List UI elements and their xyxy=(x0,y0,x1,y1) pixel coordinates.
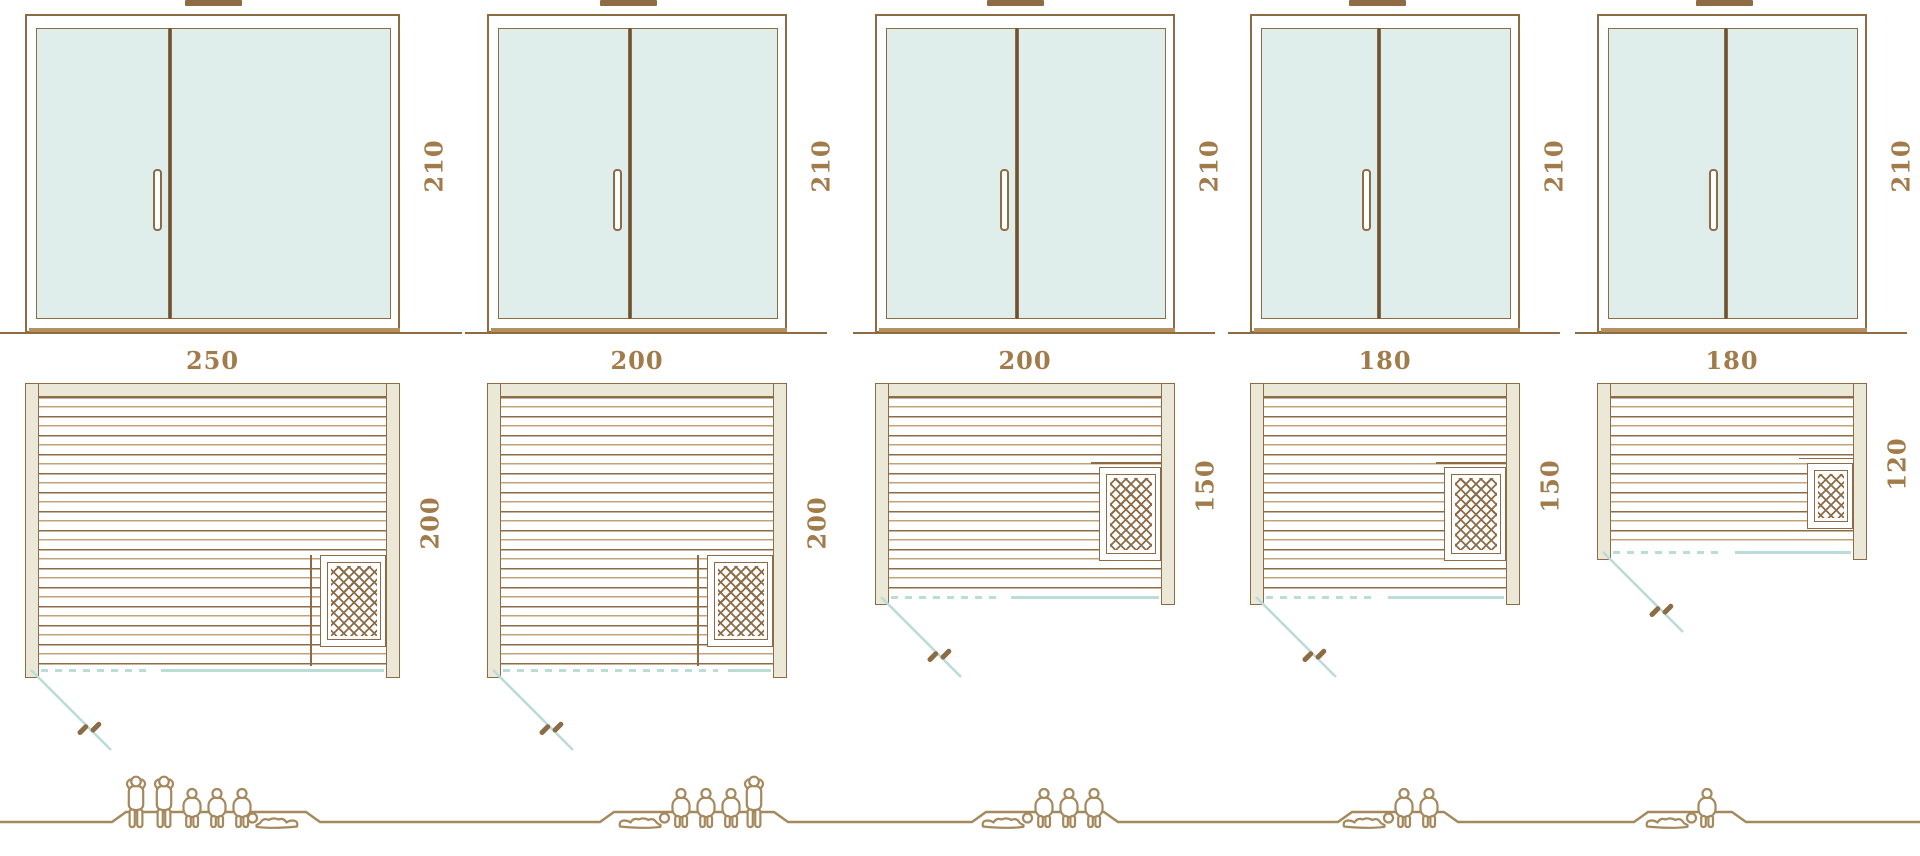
figure-sitting-icon xyxy=(723,789,740,827)
figure-lying-icon xyxy=(1647,814,1696,828)
figure-lying-icon xyxy=(620,814,669,828)
door-width-label: 250 xyxy=(25,346,400,375)
figure-sitting-icon xyxy=(209,789,226,827)
plan-wall-top xyxy=(487,383,787,397)
figure-sitting-icon xyxy=(1036,789,1053,827)
model-column: 210250200 xyxy=(25,0,400,856)
ground-line xyxy=(465,332,827,334)
plan-wall-top xyxy=(875,383,1175,397)
heater-icon xyxy=(1814,470,1848,522)
plan-wall-right xyxy=(773,383,787,678)
door-width-label: 200 xyxy=(875,346,1175,375)
plan-depth-label: 200 xyxy=(416,496,445,549)
ground-line xyxy=(0,332,462,334)
glass-pane-left xyxy=(1608,28,1725,319)
plan-wall-right xyxy=(1161,383,1175,605)
figure-lying-icon xyxy=(983,814,1032,828)
plan-depth-label: 120 xyxy=(1883,437,1912,490)
glass-pane-left xyxy=(886,28,1016,319)
door-handle-icon xyxy=(1362,169,1371,231)
bench-divider-line xyxy=(1091,462,1161,464)
glass-pane-right xyxy=(1018,28,1166,319)
door-divider xyxy=(1378,28,1380,319)
capacity-strip xyxy=(0,770,1920,856)
figure-sitting-icon xyxy=(1086,789,1103,827)
glass-wall-line xyxy=(1735,551,1851,554)
capacity-group xyxy=(620,777,763,828)
roof-stub xyxy=(185,0,242,6)
glass-pane-right xyxy=(171,28,391,319)
bench-divider-line xyxy=(697,555,699,666)
plan-wall-left xyxy=(487,383,501,678)
figure-sitting-icon xyxy=(673,789,690,827)
heater-icon xyxy=(1106,474,1156,554)
glass-wall-line xyxy=(161,669,384,672)
heater-icon xyxy=(714,562,768,640)
figure-sitting-icon xyxy=(1396,789,1413,827)
door-height-label: 210 xyxy=(1887,139,1916,192)
door-elevation xyxy=(1250,14,1520,333)
floor-plan xyxy=(487,383,787,678)
glass-pane-left xyxy=(1261,28,1378,319)
bench-divider-line xyxy=(1799,458,1853,460)
plan-wall-right xyxy=(1506,383,1520,605)
glass-pane-left xyxy=(498,28,629,319)
figure-lying-icon xyxy=(248,814,297,828)
model-column: 210180150 xyxy=(1250,0,1520,856)
plan-depth-label: 150 xyxy=(1536,459,1565,512)
door-divider xyxy=(629,28,631,319)
floor-plan xyxy=(875,383,1175,605)
door-width-label: 180 xyxy=(1597,346,1867,375)
model-column: 210200150 xyxy=(875,0,1175,856)
door-swing-line xyxy=(1597,550,1727,655)
roof-stub xyxy=(1696,0,1753,6)
glass-wall-line xyxy=(1011,596,1159,599)
plan-wall-left xyxy=(1597,383,1611,560)
figure-sitting-icon xyxy=(1699,789,1716,827)
figure-lying-icon xyxy=(1344,814,1393,828)
figure-standing-icon xyxy=(155,777,173,827)
door-height-label: 210 xyxy=(1195,139,1224,192)
ground-line xyxy=(1575,332,1907,334)
door-handle-icon xyxy=(1000,169,1009,231)
floor-plan xyxy=(1597,383,1867,560)
door-elevation xyxy=(1597,14,1867,333)
plan-wall-left xyxy=(875,383,889,605)
sauna-size-diagram: 2102502002102002002102001502101801502101… xyxy=(0,0,1920,856)
heater-icon xyxy=(1451,474,1501,554)
model-column: 210200200 xyxy=(487,0,787,856)
floor-plan xyxy=(1250,383,1520,605)
roof-stub xyxy=(987,0,1044,6)
door-divider xyxy=(1016,28,1018,319)
capacity-group xyxy=(1344,789,1438,828)
plan-wall-left xyxy=(1250,383,1264,605)
bench-divider-line xyxy=(1436,462,1506,464)
glass-pane-right xyxy=(1380,28,1511,319)
door-handle-icon xyxy=(1709,169,1718,231)
door-elevation xyxy=(25,14,400,333)
plan-wall-top xyxy=(1250,383,1520,397)
figure-standing-icon xyxy=(127,777,145,827)
door-elevation xyxy=(487,14,787,333)
door-height-label: 210 xyxy=(807,139,836,192)
figure-sitting-icon xyxy=(698,789,715,827)
figure-sitting-icon xyxy=(1421,789,1438,827)
floor-plan xyxy=(25,383,400,678)
ground-line xyxy=(1228,332,1560,334)
figure-sitting-icon xyxy=(184,789,201,827)
bench-divider-line xyxy=(310,555,312,666)
plan-depth-label: 200 xyxy=(803,496,832,549)
plan-wall-top xyxy=(1597,383,1867,397)
roof-stub xyxy=(1349,0,1406,6)
figure-sitting-icon xyxy=(1061,789,1078,827)
door-handle-icon xyxy=(613,169,622,231)
door-height-label: 210 xyxy=(1540,139,1569,192)
glass-pane-right xyxy=(1727,28,1858,319)
door-height-label: 210 xyxy=(420,139,449,192)
door-width-label: 200 xyxy=(487,346,787,375)
capacity-group xyxy=(1647,789,1716,828)
glass-wall-line xyxy=(728,669,771,672)
capacity-group xyxy=(983,789,1103,828)
plan-depth-label: 150 xyxy=(1191,459,1220,512)
model-column: 210180120 xyxy=(1597,0,1867,856)
plan-wall-right xyxy=(386,383,400,678)
door-swing-line xyxy=(875,595,1005,700)
plan-wall-left xyxy=(25,383,39,678)
figure-sitting-icon xyxy=(234,789,251,827)
plan-wall-right xyxy=(1853,383,1867,560)
glass-wall-line xyxy=(1388,596,1504,599)
figure-standing-icon xyxy=(745,777,763,827)
door-width-label: 180 xyxy=(1250,346,1520,375)
door-divider xyxy=(169,28,171,319)
ground-line xyxy=(853,332,1215,334)
door-swing-line xyxy=(25,668,155,773)
door-swing-line xyxy=(487,668,617,773)
door-elevation xyxy=(875,14,1175,333)
door-handle-icon xyxy=(153,169,162,231)
heater-icon xyxy=(327,562,381,640)
door-divider xyxy=(1725,28,1727,319)
plan-wall-top xyxy=(25,383,400,397)
capacity-group xyxy=(127,777,297,828)
glass-pane-left xyxy=(36,28,169,319)
door-swing-line xyxy=(1250,595,1380,700)
glass-pane-right xyxy=(631,28,778,319)
roof-stub xyxy=(600,0,657,6)
